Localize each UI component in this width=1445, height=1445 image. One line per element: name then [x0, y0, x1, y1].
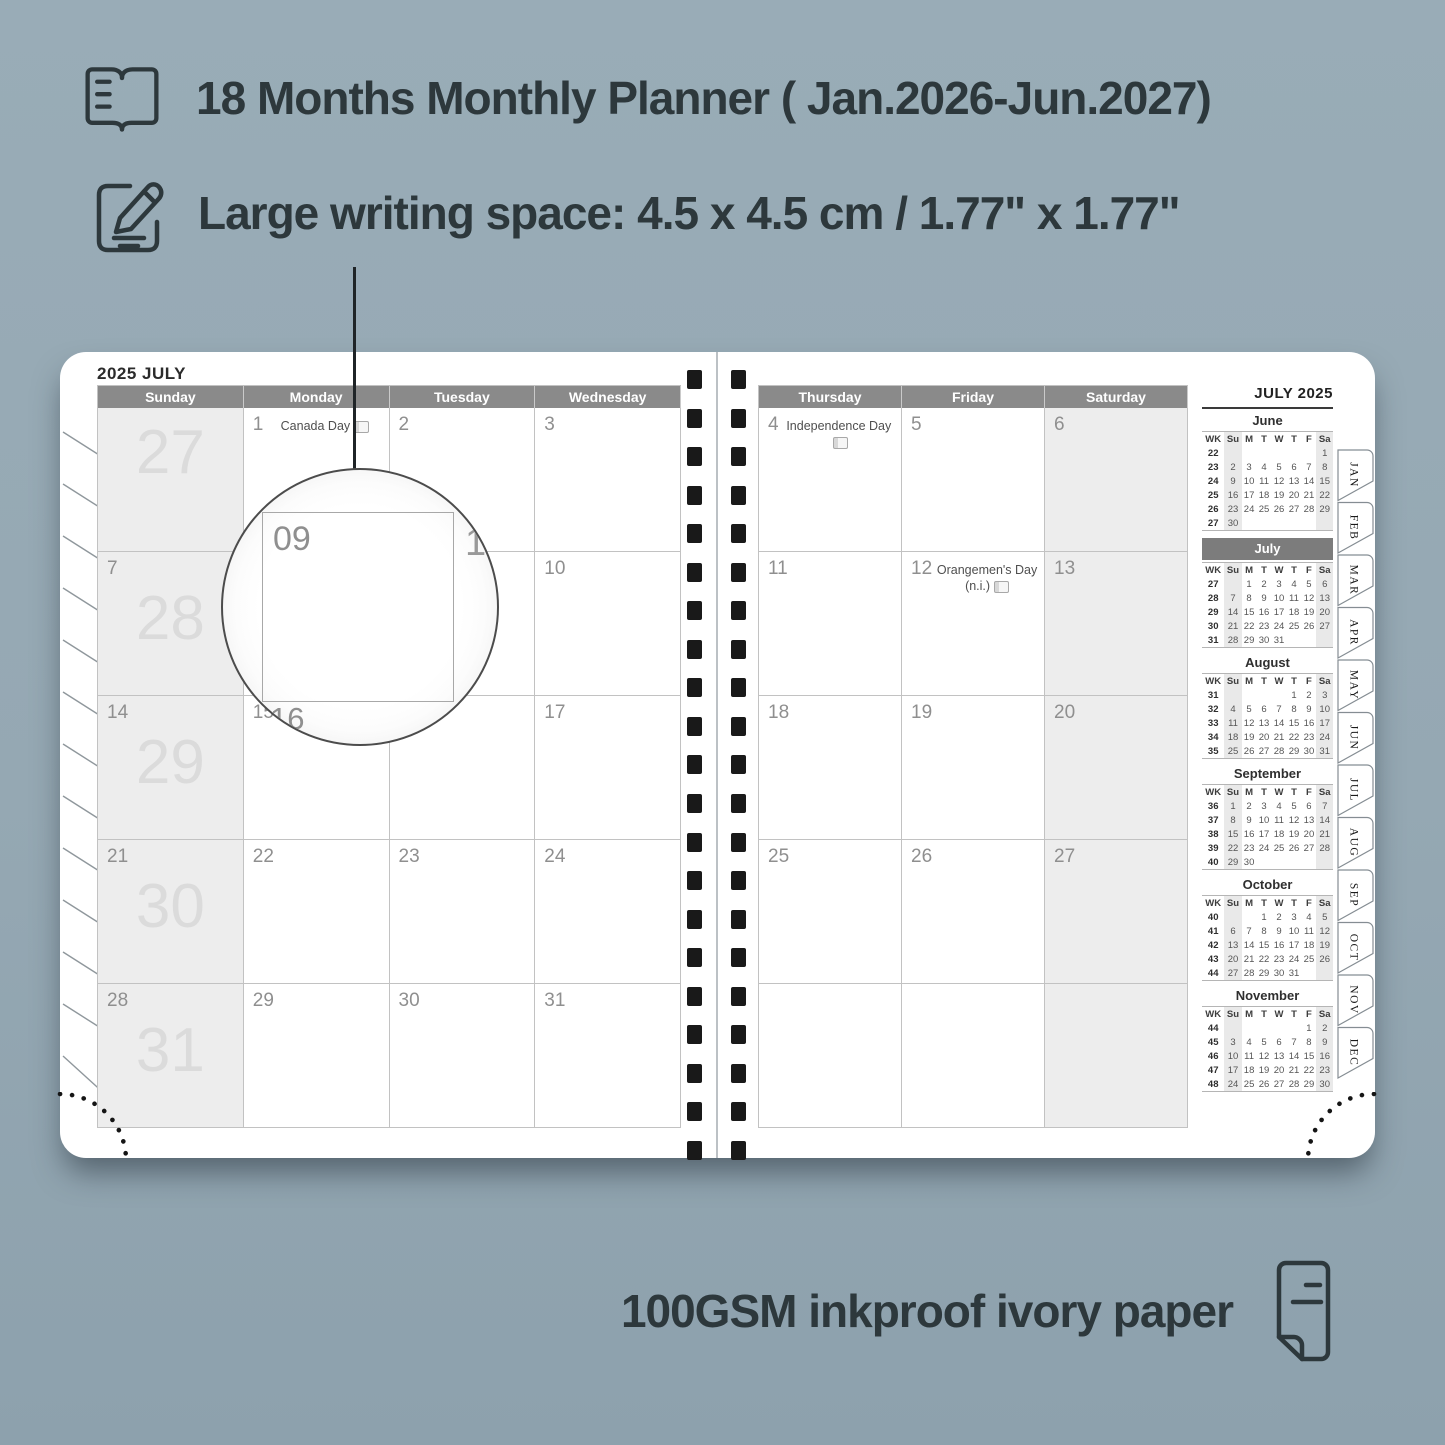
binding-hole: [731, 871, 746, 890]
binding-hole: [687, 409, 702, 428]
binding-hole: [687, 563, 702, 582]
date-number: 31: [535, 984, 565, 1012]
date-number: 26: [902, 840, 932, 868]
mini-month-table: WKSuMTWTFSa27123456287891011121329141516…: [1202, 562, 1333, 648]
binding-hole: [687, 640, 702, 659]
page-seam: [716, 352, 718, 1158]
svg-text:NOV: NOV: [1347, 985, 1359, 1014]
feature-planner-range: 18 Months Monthly Planner ( Jan.2026-Jun…: [80, 64, 1211, 132]
binding-hole: [687, 1141, 702, 1160]
calendar-cell: 23: [390, 840, 536, 984]
binding-hole: [687, 1064, 702, 1083]
date-number: 27: [1045, 840, 1075, 868]
binding-hole: [687, 601, 702, 620]
binding-hole: [687, 871, 702, 890]
svg-text:APR: APR: [1347, 619, 1359, 646]
week-number: 30: [98, 876, 243, 938]
month-tab-jul: JUL: [1338, 765, 1373, 816]
mini-month-title: July: [1202, 538, 1333, 560]
binding-hole: [687, 524, 702, 543]
cell-top: 12Orangemen's Day (n.i.): [902, 552, 1044, 595]
svg-text:JAN: JAN: [1347, 462, 1359, 488]
mini-month-table: WKSuMTWTFSa44124534567894610111213141516…: [1202, 1006, 1333, 1092]
calendar-cell: 27: [1045, 840, 1188, 984]
month-tab-may: MAY: [1338, 660, 1373, 711]
calendar-cell: 22: [244, 840, 390, 984]
date-number: 17: [535, 696, 565, 724]
spiral-binding-right: [731, 370, 746, 1160]
mini-month-table: WKSuMTWTFSa22123234567824910111213141525…: [1202, 431, 1333, 531]
calendar-cell: 6: [1045, 408, 1188, 552]
svg-text:DEC: DEC: [1347, 1039, 1359, 1067]
cell-top: 14: [98, 696, 243, 724]
calendar-cell: 31: [535, 984, 681, 1128]
product-image: 18 Months Monthly Planner ( Jan.2026-Jun…: [0, 0, 1445, 1445]
corner-dots-right: [1298, 1092, 1378, 1168]
holiday-flag-badge: [833, 437, 848, 449]
cell-top: 29: [244, 984, 389, 1012]
mini-month-july: JulyWKSuMTWTFSa2712345628789101112132914…: [1202, 538, 1333, 648]
binding-hole: [731, 601, 746, 620]
date-number: 11: [759, 552, 788, 580]
cell-top: 25: [759, 840, 901, 868]
binding-hole: [687, 447, 702, 466]
mini-month-title: August: [1202, 655, 1333, 670]
binding-hole: [687, 678, 702, 697]
month-tab-sep: SEP: [1338, 870, 1373, 921]
cell-top: [759, 984, 901, 990]
binding-hole: [731, 755, 746, 774]
svg-text:MAY: MAY: [1347, 670, 1359, 700]
binding-hole: [687, 833, 702, 852]
calendar-cell: 12Orangemen's Day (n.i.): [902, 552, 1045, 696]
calendar-cell: 20: [1045, 696, 1188, 840]
svg-text:OCT: OCT: [1347, 934, 1359, 962]
calendar-cell: 2130: [98, 840, 244, 984]
mini-month-june: JuneWKSuMTWTFSa2212323456782491011121314…: [1202, 413, 1333, 531]
cell-top: 1Canada Day: [244, 408, 389, 436]
calendar-cell: [759, 984, 902, 1128]
cell-top: [98, 408, 243, 414]
month-tab-aug: AUG: [1338, 818, 1373, 869]
calendar-cell: 10: [535, 552, 681, 696]
month-tab-nov: NOV: [1338, 975, 1373, 1026]
cell-top: 24: [535, 840, 680, 868]
svg-text:JUN: JUN: [1347, 725, 1359, 751]
calendar-cell: 11: [759, 552, 902, 696]
cell-top: 22: [244, 840, 389, 868]
date-number: 18: [759, 696, 789, 724]
cell-top: 30: [390, 984, 535, 1012]
cell-top: 13: [1045, 552, 1187, 580]
cell-top: 18: [759, 696, 901, 724]
planner-spread: 2025 JULY SundayMondayTuesdayWednesday27…: [60, 352, 1375, 1158]
calendar-cell: 29: [244, 984, 390, 1128]
binding-hole: [687, 1102, 702, 1121]
mini-month-title: September: [1202, 766, 1333, 781]
binding-hole: [731, 524, 746, 543]
svg-text:FEB: FEB: [1347, 515, 1359, 541]
cell-top: [902, 984, 1044, 990]
cell-top: 5: [902, 408, 1044, 436]
date-number: 29: [244, 984, 274, 1012]
date-number: [1045, 984, 1054, 990]
cell-top: 31: [535, 984, 680, 1012]
month-tab-jun: JUN: [1338, 713, 1373, 764]
date-number: 10: [535, 552, 565, 580]
binding-hole: [731, 833, 746, 852]
mini-month-title: November: [1202, 988, 1333, 1003]
calendar-cell: 24: [535, 840, 681, 984]
holiday-flag-badge: [994, 581, 1009, 593]
holiday-label: Independence Day: [779, 408, 901, 451]
month-tab-apr: APR: [1338, 608, 1373, 659]
day-header: Tuesday: [390, 386, 536, 408]
mini-month-september: SeptemberWKSuMTWTFSa36123456737891011121…: [1202, 766, 1333, 870]
day-header: Friday: [902, 386, 1045, 408]
mini-month-november: NovemberWKSuMTWTFSa441245345678946101112…: [1202, 988, 1333, 1092]
date-number: 23: [390, 840, 420, 868]
cell-top: 7: [98, 552, 243, 580]
month-tab-feb: FEB: [1338, 503, 1373, 554]
cell-top: 27: [1045, 840, 1187, 868]
feature-writing-space-label: Large writing space: 4.5 x 4.5 cm / 1.77…: [198, 186, 1180, 240]
binding-hole: [687, 717, 702, 736]
magnified-partial-date: 1: [465, 522, 486, 565]
left-page-title: 2025 JULY: [97, 364, 186, 384]
mini-month-title: June: [1202, 413, 1333, 428]
calendar-cell: 19: [902, 696, 1045, 840]
cell-top: 2: [390, 408, 535, 436]
calendar-cell: 1429: [98, 696, 244, 840]
holiday-label: Canada Day: [263, 408, 388, 434]
feature-writing-space: Large writing space: 4.5 x 4.5 cm / 1.77…: [92, 170, 1180, 256]
month-tab-strip: JANFEBMARAPRMAYJUNJULAUGSEPOCTNOVDEC: [1337, 448, 1377, 1088]
date-number: 7: [98, 552, 118, 580]
compose-icon: [92, 170, 168, 256]
corner-dots-left: [56, 1092, 136, 1168]
binding-hole: [731, 1141, 746, 1160]
month-tab-dec: DEC: [1338, 1028, 1373, 1079]
binding-hole: [731, 640, 746, 659]
mini-month-table: WKSuMTWTFSa31123324567891033111213141516…: [1202, 673, 1333, 759]
day-header: Thursday: [759, 386, 902, 408]
cell-top: 21: [98, 840, 243, 868]
mini-month-title: October: [1202, 877, 1333, 892]
mini-month-table: WKSuMTWTFSa40123454167891011124213141516…: [1202, 895, 1333, 981]
day-header: Wednesday: [535, 386, 681, 408]
binding-hole: [731, 447, 746, 466]
cell-top: 23: [390, 840, 535, 868]
open-book-icon: [80, 64, 164, 132]
mini-calendar-sidebar: JULY 2025 JuneWKSuMTWTFSa221232345678249…: [1202, 385, 1333, 1099]
mini-months-list: JuneWKSuMTWTFSa2212323456782491011121314…: [1202, 413, 1333, 1092]
calendar-cell: 25: [759, 840, 902, 984]
cell-top: 4Independence Day: [759, 408, 901, 451]
date-number: 12: [902, 552, 932, 580]
calendar-cell: 3: [535, 408, 681, 552]
binding-hole: [687, 755, 702, 774]
magnified-cell-label: 09: [273, 520, 311, 559]
date-number: 4: [759, 408, 779, 436]
calendar-cell: 4Independence Day: [759, 408, 902, 552]
date-number: 28: [98, 984, 128, 1012]
cell-top: 10: [535, 552, 680, 580]
cell-top: 20: [1045, 696, 1187, 724]
cell-top: 6: [1045, 408, 1187, 436]
binding-hole: [731, 794, 746, 813]
date-number: [759, 984, 768, 990]
date-number: 3: [535, 408, 555, 436]
mini-month-october: OctoberWKSuMTWTFSa4012345416789101112421…: [1202, 877, 1333, 981]
calendar-cell: 5: [902, 408, 1045, 552]
binding-hole: [731, 910, 746, 929]
date-number: 14: [98, 696, 128, 724]
binding-hole: [731, 678, 746, 697]
month-tab-oct: OCT: [1338, 923, 1373, 974]
spiral-binding-left: [687, 370, 702, 1160]
binding-hole: [731, 948, 746, 967]
date-number: 5: [902, 408, 922, 436]
calendar-cell: 26: [902, 840, 1045, 984]
date-number: 21: [98, 840, 128, 868]
right-month-grid: ThursdayFridaySaturday4Independence Day5…: [758, 385, 1188, 1128]
magnifier-leader-line: [353, 267, 356, 473]
date-number: 1: [244, 408, 264, 436]
binding-hole: [731, 717, 746, 736]
binding-hole: [731, 563, 746, 582]
feature-paper-quality-label: 100GSM inkproof ivory paper: [621, 1284, 1233, 1338]
mini-month-august: AugustWKSuMTWTFSa31123324567891033111213…: [1202, 655, 1333, 759]
paper-icon: [1271, 1258, 1333, 1364]
cell-top: 28: [98, 984, 243, 1012]
binding-hole: [731, 987, 746, 1006]
binding-hole: [731, 370, 746, 389]
calendar-cell: 30: [390, 984, 536, 1128]
date-number: 6: [1045, 408, 1065, 436]
date-number: 30: [390, 984, 420, 1012]
binding-hole: [731, 409, 746, 428]
binding-hole: [731, 486, 746, 505]
mini-month-table: WKSuMTWTFSa36123456737891011121314381516…: [1202, 784, 1333, 870]
calendar-cell: [902, 984, 1045, 1128]
magnified-small-date: 15: [253, 710, 270, 727]
month-tab-jan: JAN: [1338, 450, 1373, 501]
binding-hole: [687, 948, 702, 967]
binding-hole: [687, 1025, 702, 1044]
cell-top: 3: [535, 408, 680, 436]
magnifier-circle: 09 1 15 16: [221, 468, 499, 746]
binding-hole: [687, 794, 702, 813]
holiday-flag-badge: [354, 421, 369, 433]
cell-top: 17: [535, 696, 680, 724]
svg-text:JUL: JUL: [1347, 778, 1359, 802]
binding-hole: [687, 370, 702, 389]
date-number: [902, 984, 911, 990]
date-number: [98, 408, 107, 414]
binding-hole: [687, 486, 702, 505]
cell-top: 19: [902, 696, 1044, 724]
feature-paper-quality: 100GSM inkproof ivory paper: [621, 1258, 1333, 1364]
cell-top: [1045, 984, 1187, 990]
calendar-cell: 27: [98, 408, 244, 552]
svg-text:SEP: SEP: [1347, 883, 1359, 907]
date-number: 20: [1045, 696, 1075, 724]
day-header: Monday: [244, 386, 390, 408]
date-number: 19: [902, 696, 932, 724]
calendar-cell: 13: [1045, 552, 1188, 696]
calendar-cell: 17: [535, 696, 681, 840]
holiday-label: Orangemen's Day (n.i.): [932, 552, 1044, 595]
week-number: 31: [98, 1020, 243, 1082]
date-number: 13: [1045, 552, 1075, 580]
binding-hole: [731, 1064, 746, 1083]
magnified-big-date: 16: [270, 701, 304, 737]
cell-top: 26: [902, 840, 1044, 868]
day-header: Sunday: [98, 386, 244, 408]
day-header: Saturday: [1045, 386, 1188, 408]
cell-top: 11: [759, 552, 901, 580]
calendar-cell: 18: [759, 696, 902, 840]
binding-hole: [687, 987, 702, 1006]
svg-text:AUG: AUG: [1347, 828, 1359, 857]
binding-hole: [687, 910, 702, 929]
date-number: 24: [535, 840, 565, 868]
calendar-cell: [1045, 984, 1188, 1128]
date-number: 22: [244, 840, 274, 868]
week-number: 27: [98, 422, 243, 484]
svg-text:MAR: MAR: [1347, 565, 1359, 596]
week-number: 29: [98, 732, 243, 794]
date-number: 25: [759, 840, 789, 868]
feature-planner-range-label: 18 Months Monthly Planner ( Jan.2026-Jun…: [196, 71, 1211, 125]
date-number: 2: [390, 408, 410, 436]
month-tab-mar: MAR: [1338, 555, 1373, 606]
sidebar-month-title: JULY 2025: [1202, 385, 1333, 409]
binding-hole: [731, 1102, 746, 1121]
binding-hole: [731, 1025, 746, 1044]
